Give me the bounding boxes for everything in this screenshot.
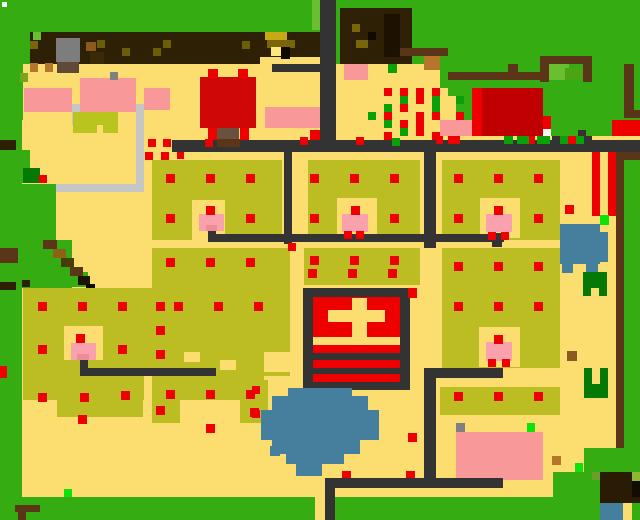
pixel-map-screen bbox=[0, 0, 640, 520]
map-canvas[interactable] bbox=[0, 0, 640, 520]
